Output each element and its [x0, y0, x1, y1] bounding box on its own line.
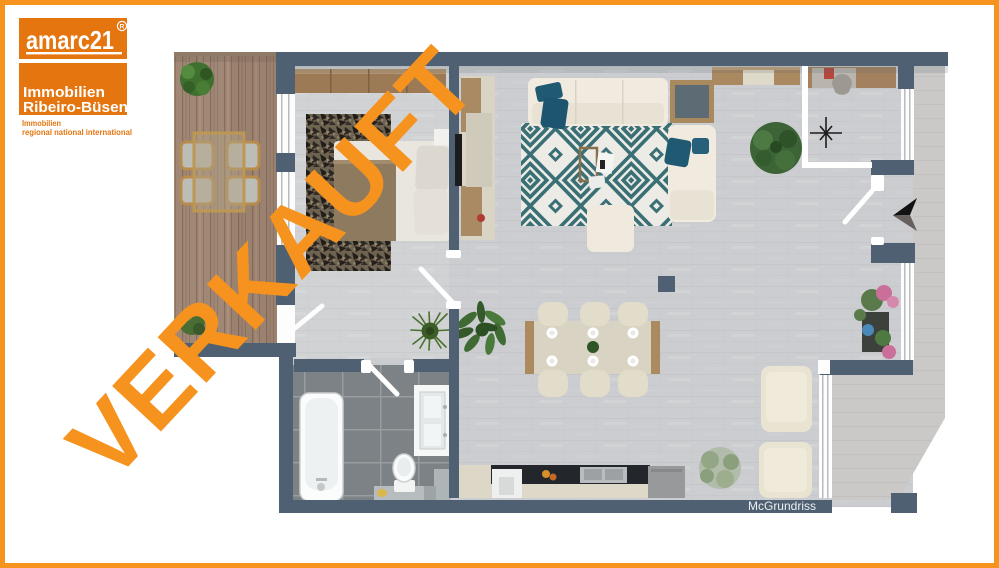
svg-text:amarc21: amarc21 [26, 25, 114, 55]
svg-text:regional national internationa: regional national international [22, 127, 132, 137]
svg-text:McGrundriss: McGrundriss [748, 499, 816, 513]
svg-text:Ribeiro-Büsen: Ribeiro-Büsen [23, 99, 128, 116]
svg-text:R: R [120, 24, 125, 31]
